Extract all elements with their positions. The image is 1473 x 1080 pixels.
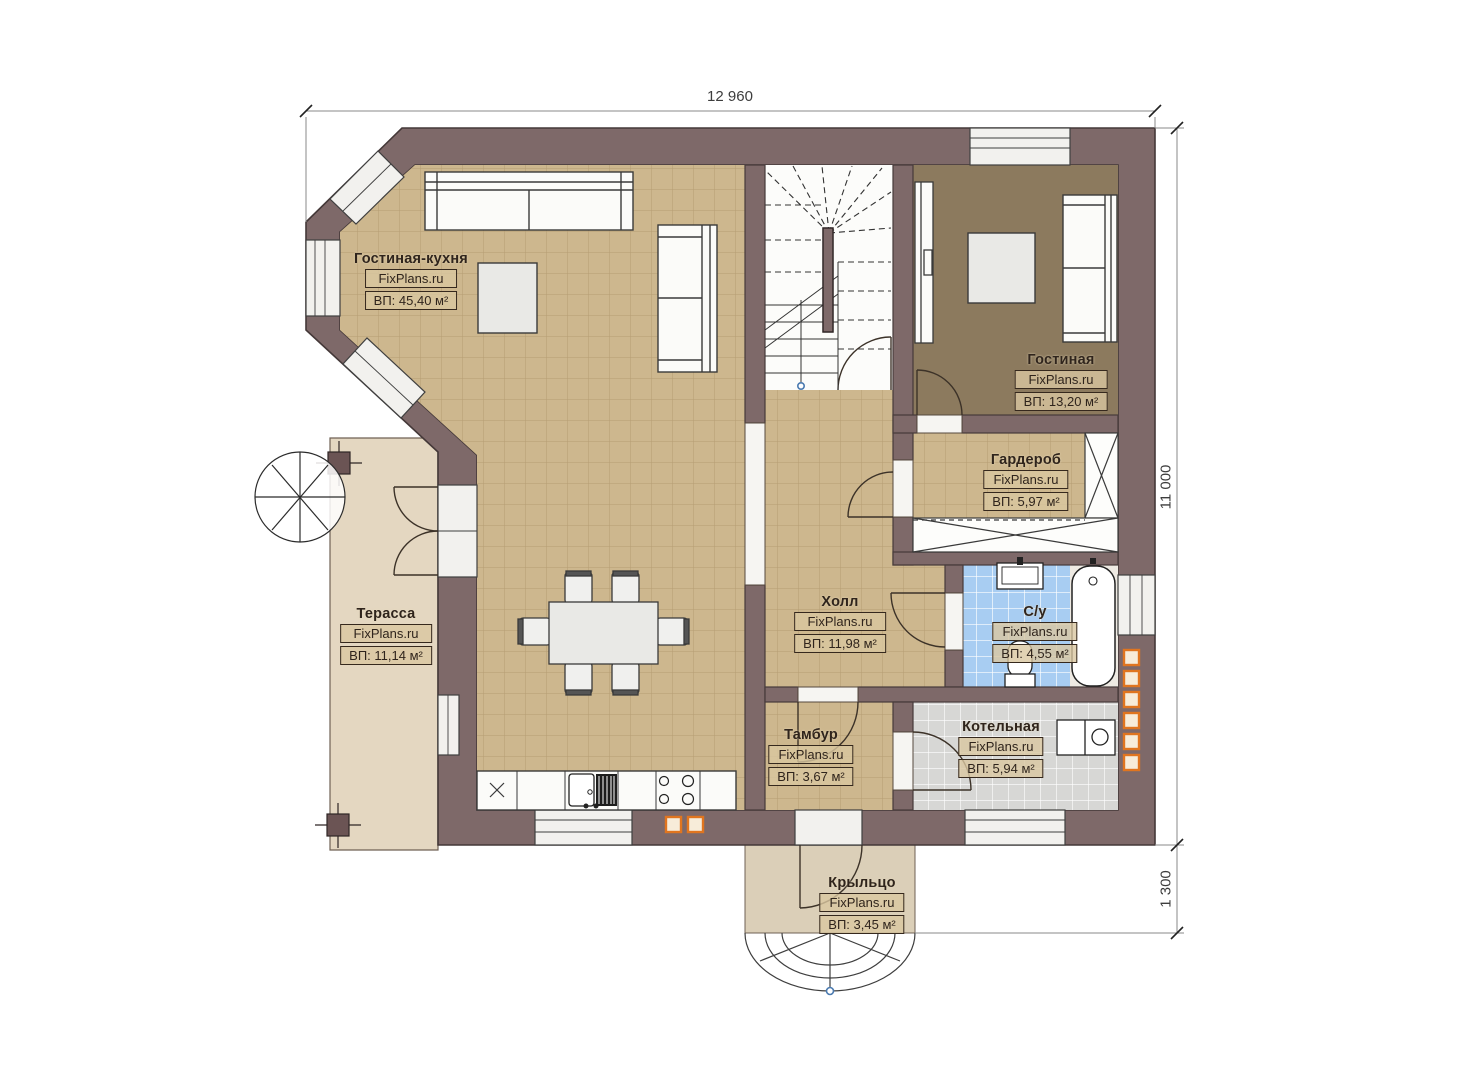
bay-window-left [306,240,340,316]
tree-symbol [255,452,345,542]
dimension-right-lower: 1 300 [1158,870,1175,908]
room-name: Терасса [340,606,432,622]
room-brand: FixPlans.ru [819,893,904,912]
room-info-box: FixPlans.ru ВП: 5,97 м² [983,470,1068,511]
terrace-side-window [438,695,459,755]
room-name: Котельная [958,719,1043,735]
room-area: ВП: 3,45 м² [819,915,904,934]
living-room-sofa [1063,195,1117,342]
room-area: ВП: 13,20 м² [1015,392,1108,411]
tv-unit [915,182,933,343]
floor-plan-drawing [0,0,1473,1080]
porch-steps [745,933,915,995]
room-area: ВП: 11,98 м² [794,634,886,653]
room-brand: FixPlans.ru [340,624,432,643]
sofa-small [658,225,717,372]
room-info-box: FixPlans.ru ВП: 4,55 м² [992,622,1077,663]
room-label-bathroom: С/у FixPlans.ru ВП: 4,55 м² [992,604,1077,663]
bathtub [1072,558,1115,686]
room-area: ВП: 4,55 м² [992,644,1077,663]
dish-rack [596,774,617,806]
terrace-door [438,485,477,577]
kitchen-counter [477,771,736,810]
boiler-room-window [965,810,1065,845]
room-brand: FixPlans.ru [983,470,1068,489]
room-info-box: FixPlans.ru ВП: 5,94 м² [958,737,1043,778]
room-info-box: FixPlans.ru ВП: 11,98 м² [794,612,886,653]
bathroom-window [1118,575,1155,635]
dimension-top: 12 960 [707,88,753,105]
room-name: Гостиная-кухня [354,251,468,267]
room-brand: FixPlans.ru [958,737,1043,756]
kitchen-sink [569,774,599,809]
room-name: Гостиная [1015,352,1108,368]
room-label-boiler-room: Котельная FixPlans.ru ВП: 5,94 м² [958,719,1043,778]
kitchen-window [535,810,632,845]
room-label-terrace: Терасса FixPlans.ru ВП: 11,14 м² [340,606,432,665]
room-name: С/у [992,604,1077,620]
boiler-equipment [1057,720,1115,755]
room-label-wardrobe: Гардероб FixPlans.ru ВП: 5,97 м² [983,452,1068,511]
floor-plan-page: 12 960 11 000 1 300 Гостиная-кухня FixPl… [0,0,1473,1080]
room-name: Холл [794,594,886,610]
coffee-table [478,263,537,333]
room-area: ВП: 5,97 м² [983,492,1068,511]
room-label-porch: Крыльцо FixPlans.ru ВП: 3,45 м² [819,875,904,934]
room-name: Тамбур [768,727,853,743]
room-brand: FixPlans.ru [768,745,853,764]
room-brand: FixPlans.ru [992,622,1077,641]
room-area: ВП: 3,67 м² [768,767,853,786]
side-table [968,233,1035,303]
room-name: Крыльцо [819,875,904,891]
room-brand: FixPlans.ru [794,612,886,631]
room-info-box: FixPlans.ru ВП: 11,14 м² [340,624,432,665]
room-label-living-room: Гостиная FixPlans.ru ВП: 13,20 м² [1015,352,1108,411]
room-info-box: FixPlans.ru ВП: 45,40 м² [365,269,458,310]
dimension-right: 11 000 [1158,465,1175,510]
room-brand: FixPlans.ru [1015,370,1108,389]
stair-core-wall [823,228,833,332]
room-label-hall: Холл FixPlans.ru ВП: 11,98 м² [794,594,886,653]
room-label-living-kitchen: Гостиная-кухня FixPlans.ru ВП: 45,40 м² [354,251,468,310]
room-info-box: FixPlans.ru ВП: 3,45 м² [819,893,904,934]
room-area: ВП: 5,94 м² [958,759,1043,778]
entrance-door-opening [795,810,862,845]
room-info-box: FixPlans.ru ВП: 3,67 м² [768,745,853,786]
room-label-vestibule: Тамбур FixPlans.ru ВП: 3,67 м² [768,727,853,786]
room-info-box: FixPlans.ru ВП: 13,20 м² [1015,370,1108,411]
room-brand: FixPlans.ru [365,269,458,288]
sofa-large [425,172,633,230]
room-name: Гардероб [983,452,1068,468]
room-area: ВП: 11,14 м² [340,646,432,665]
top-wall-window [970,128,1070,165]
room-area: ВП: 45,40 м² [365,291,458,310]
